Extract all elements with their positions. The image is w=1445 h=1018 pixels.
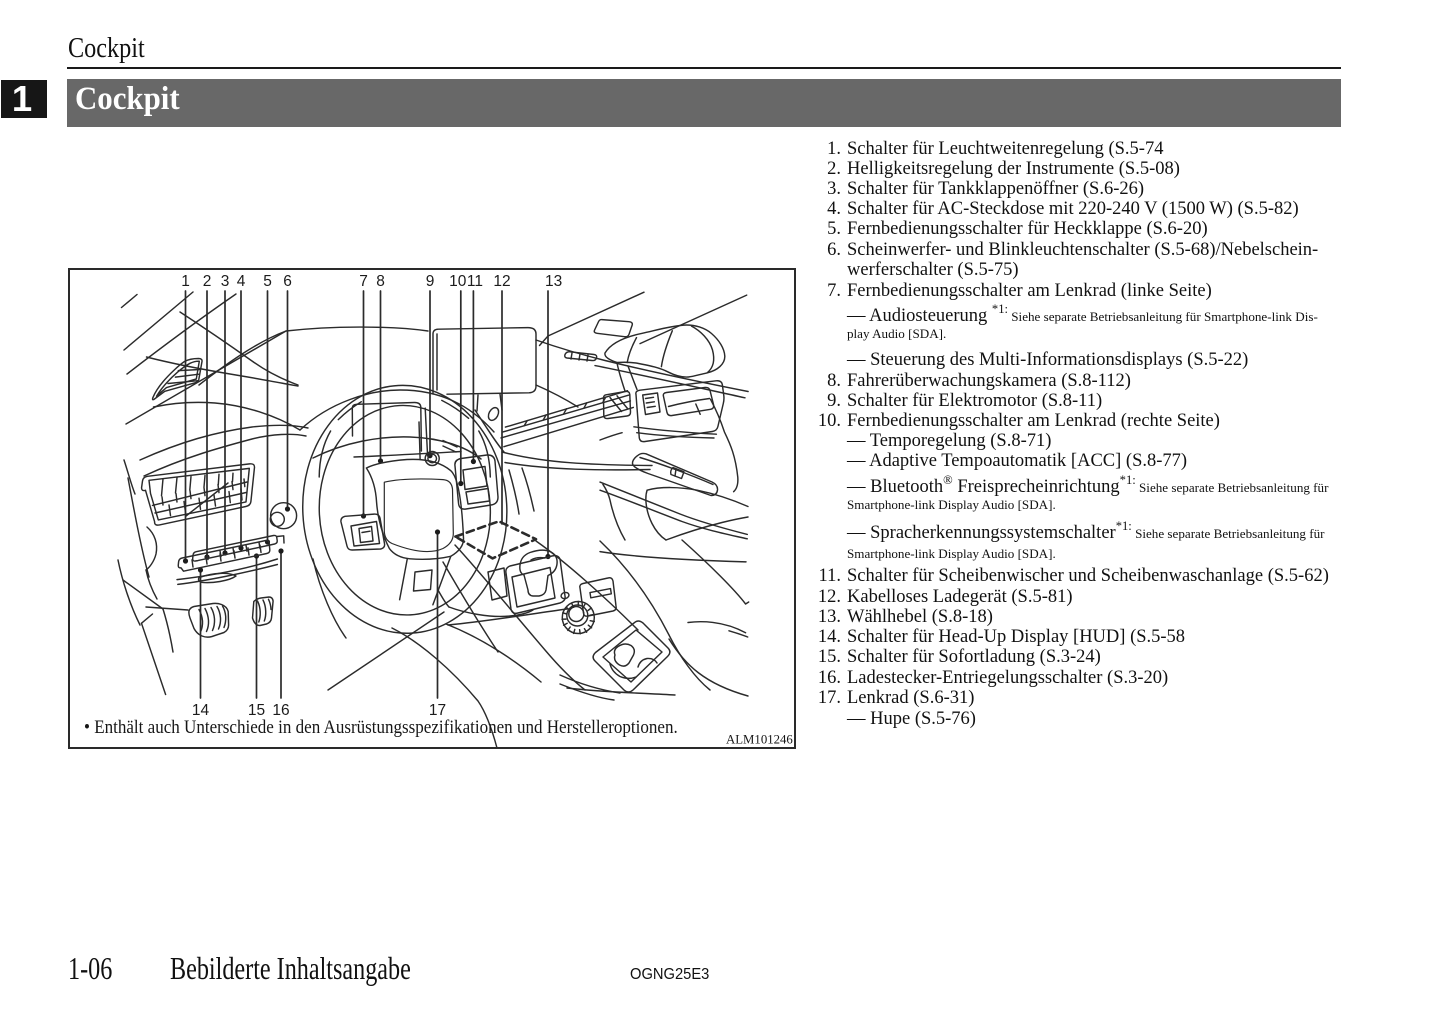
svg-text:5: 5 — [263, 273, 272, 290]
svg-text:12: 12 — [493, 273, 510, 290]
svg-text:ALM101246: ALM101246 — [726, 733, 793, 747]
svg-text:8: 8 — [376, 273, 385, 290]
svg-text:6: 6 — [283, 273, 292, 290]
svg-text:13: 13 — [545, 273, 562, 290]
svg-text:1: 1 — [181, 273, 190, 290]
svg-text:4: 4 — [237, 273, 246, 290]
svg-text:3: 3 — [221, 273, 230, 290]
svg-text:10: 10 — [449, 273, 467, 290]
svg-text:9: 9 — [426, 273, 435, 290]
svg-text:2: 2 — [203, 273, 212, 290]
svg-text:• Enthält auch Unterschiede in: • Enthält auch Unterschiede in den Ausrü… — [84, 716, 678, 737]
svg-text:11: 11 — [467, 273, 483, 290]
svg-text:7: 7 — [359, 273, 368, 290]
